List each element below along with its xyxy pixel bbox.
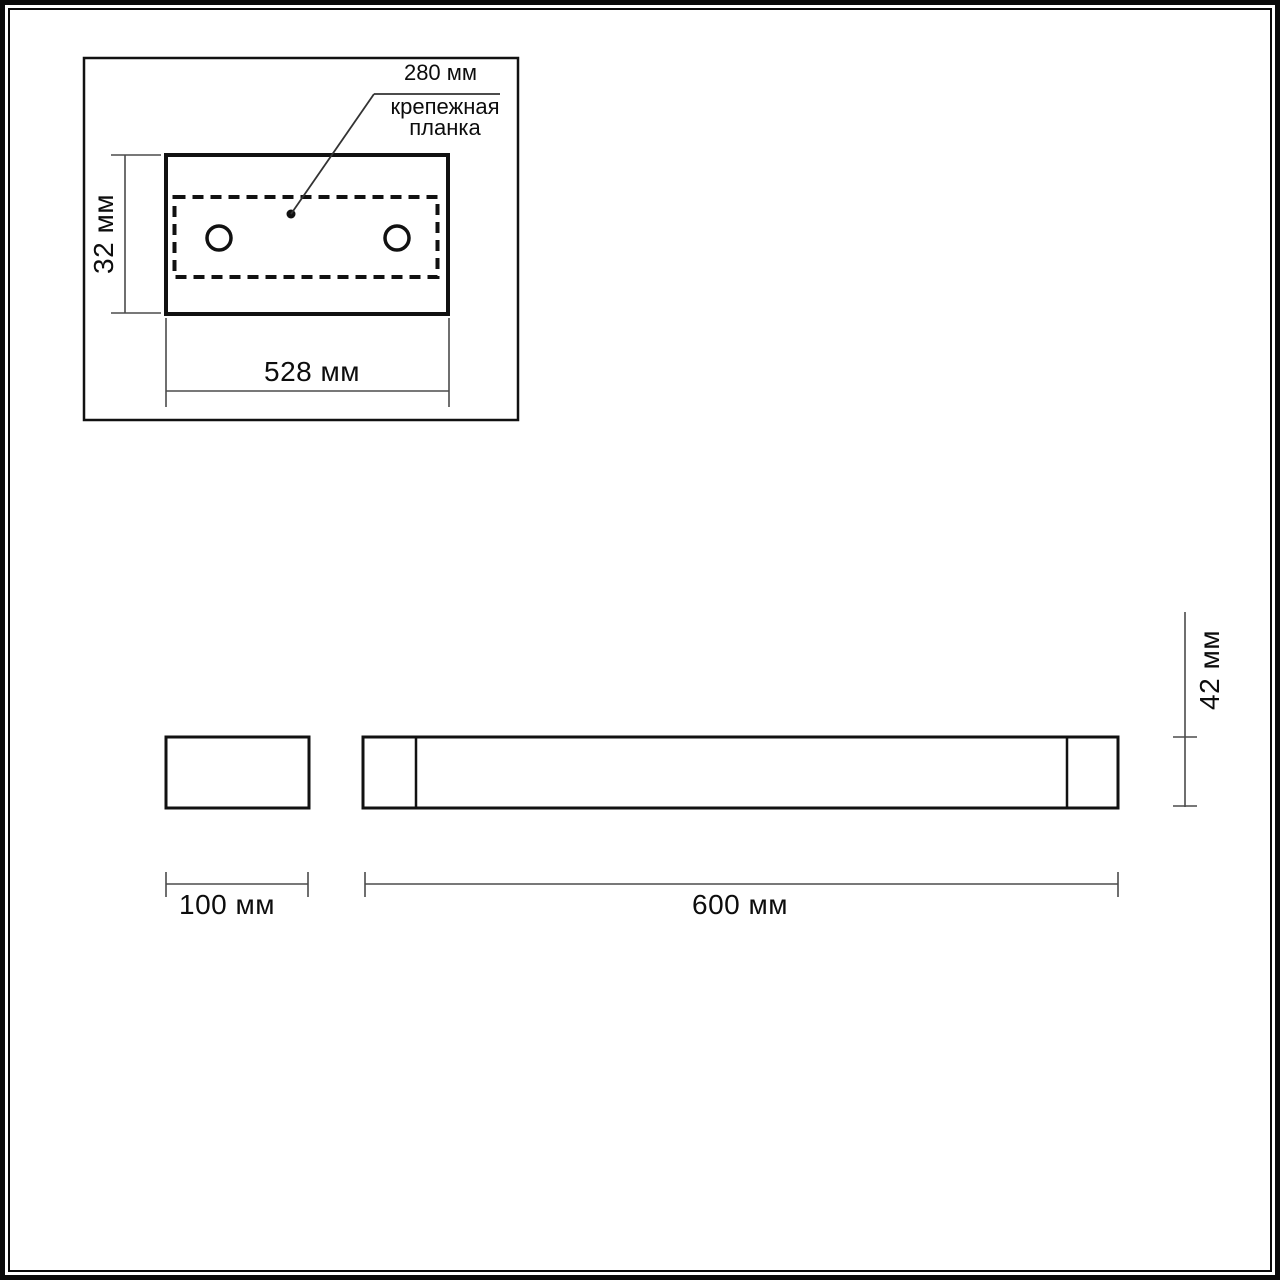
front-view-outline bbox=[363, 737, 1118, 808]
mounting-hole-left bbox=[207, 226, 231, 250]
front-view-width-label: 600 мм bbox=[640, 890, 840, 920]
mounting-plate-caption: крепежная планка bbox=[375, 96, 515, 138]
side-view-outline bbox=[166, 737, 309, 808]
side-view-width-label: 100 мм bbox=[137, 890, 317, 920]
mounting-span-label: 280 мм bbox=[373, 62, 508, 84]
back-view-height-label: 32 мм bbox=[89, 154, 121, 314]
back-view-width-label: 528 мм bbox=[212, 357, 412, 387]
drawing-canvas bbox=[0, 0, 1280, 1280]
mounting-hole-right bbox=[385, 226, 409, 250]
mounting-plate-dashed-outline bbox=[175, 197, 438, 277]
front-view-height-label: 42 мм bbox=[1195, 590, 1227, 750]
